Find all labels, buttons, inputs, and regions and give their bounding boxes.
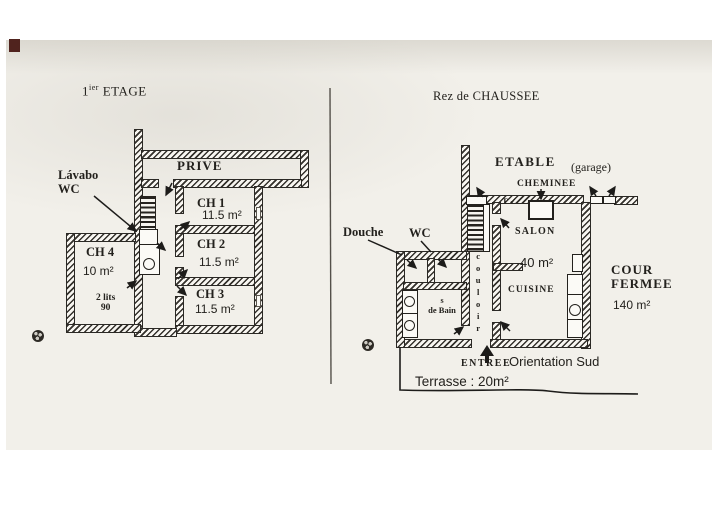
- bathtub-tap: [404, 320, 415, 331]
- sdb-label: s de Bain: [424, 297, 460, 315]
- floor1-title-num: 1: [82, 83, 89, 98]
- corner-mark: [9, 39, 20, 52]
- wall-segment: [176, 226, 262, 233]
- room-label-ch3: CH 3: [196, 288, 224, 302]
- wall-segment: [301, 151, 308, 187]
- cour-fermee-label: COUR FERMEE: [611, 263, 673, 291]
- target-mark-icon: [32, 330, 44, 342]
- wc-label: WC: [409, 227, 431, 241]
- wall-segment: [493, 203, 500, 213]
- room-label-etable: ETABLE: [495, 155, 556, 169]
- bathtub-tap: [404, 296, 415, 307]
- cour-line1: COUR: [611, 263, 673, 277]
- terrasse-label: Terrasse : 20m²: [415, 375, 509, 390]
- wall-segment: [176, 326, 262, 333]
- window-notch: [256, 295, 261, 307]
- fireplace-box: [528, 200, 554, 220]
- douche-label: Douche: [343, 226, 383, 240]
- scanned-floorplan-document: 1ier ETAGE Lávabo WC PRIVE CH 1 11.5 m² …: [0, 0, 720, 508]
- lavabo-line1: Lávabo: [58, 169, 98, 183]
- salon-label: SALON: [515, 227, 555, 238]
- room-label-ch4: CH 4: [86, 246, 114, 260]
- lavabo-line2: WC: [58, 183, 98, 197]
- room-label-ch2: CH 2: [197, 238, 225, 252]
- wall-segment: [176, 297, 183, 326]
- wall-segment: [174, 180, 301, 187]
- tv-mark: T ✓: [502, 197, 517, 206]
- ch4-beds-line2: 90: [96, 303, 115, 313]
- floor1-title-rest: ETAGE: [103, 83, 147, 98]
- wall-segment: [582, 203, 590, 348]
- wall-segment: [142, 151, 308, 158]
- ch4-beds-line1: 2 lits: [96, 293, 115, 303]
- wall-segment: [404, 283, 466, 289]
- radiator-divider: [568, 319, 582, 320]
- wall-segment: [397, 252, 466, 259]
- room-area-ch1: 11.5 m²: [202, 209, 242, 222]
- lavabo-label: Lávabo WC: [58, 169, 98, 196]
- wall-segment: [397, 340, 471, 347]
- wall-segment: [176, 187, 183, 213]
- cour-line2: FERMEE: [611, 277, 673, 291]
- wall-segment: [491, 340, 587, 347]
- target-mark-icon: [362, 339, 374, 351]
- cuisine-label: CUISINE: [508, 285, 555, 295]
- wall-segment: [176, 268, 183, 278]
- room-area-ch3: 11.5 m²: [195, 303, 235, 316]
- sdb-line2: de Bain: [424, 306, 460, 315]
- wall-segment: [142, 180, 158, 187]
- stair-rail: [483, 204, 490, 252]
- wall-segment: [67, 234, 135, 241]
- wall-segment: [493, 323, 500, 340]
- salon-area-label: 40 m²: [520, 256, 553, 270]
- garage-door-leaf: [590, 196, 603, 204]
- wall-segment: [135, 329, 176, 336]
- radiator-divider: [568, 294, 582, 295]
- stairs-icon: [140, 196, 156, 230]
- wall-segment: [176, 278, 262, 285]
- radiator-knob: [569, 304, 581, 316]
- floor1-title-sup: ier: [89, 83, 99, 92]
- ch4-beds-note: 2 lits 90: [96, 293, 115, 314]
- window-notch: [256, 207, 261, 220]
- room-area-ch4: 10 m²: [83, 265, 114, 278]
- wall-segment: [67, 234, 74, 332]
- cheminee-label: CHEMINEE: [517, 179, 576, 189]
- room-label-prive: PRIVE: [177, 159, 222, 173]
- wall-segment: [494, 264, 522, 270]
- orientation-label: Orientation Sud: [509, 355, 599, 369]
- cour-area-label: 140 m²: [613, 299, 650, 312]
- bathtub-divider: [403, 313, 417, 314]
- toilet-circle: [143, 258, 155, 270]
- wall-segment: [67, 325, 140, 332]
- floor1-title: 1ier ETAGE: [82, 84, 147, 98]
- room-area-ch2: 11.5 m²: [199, 256, 239, 269]
- couloir-label: couloir: [473, 251, 482, 323]
- wall-segment: [615, 197, 637, 204]
- wall-segment: [176, 233, 183, 256]
- stair-landing: [139, 229, 158, 245]
- floor0-title: Rez de CHAUSSEE: [433, 90, 540, 104]
- window-box: [572, 254, 583, 272]
- garage-door-leaf: [603, 196, 616, 204]
- garage-label: (garage): [571, 161, 611, 174]
- entree-label: ENTREE: [461, 359, 511, 370]
- stairs-icon: [467, 204, 484, 252]
